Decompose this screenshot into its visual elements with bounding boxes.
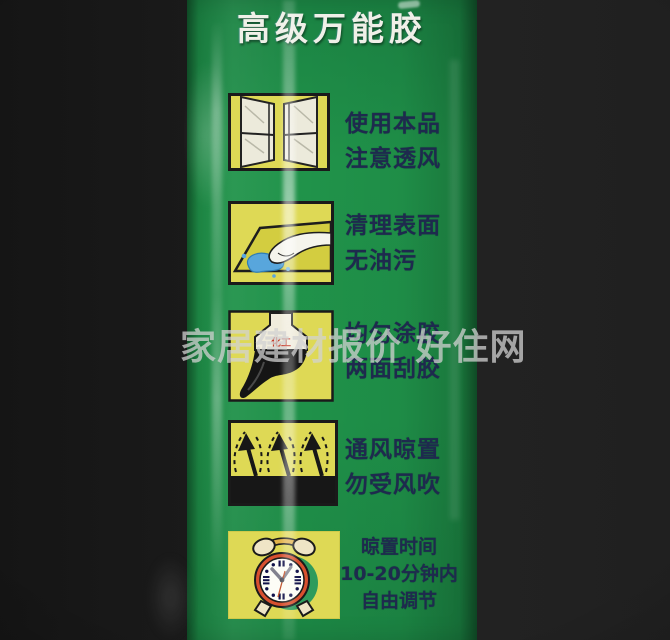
wipe-surface-icon xyxy=(228,201,334,285)
step-line: 使用本品 xyxy=(345,107,441,142)
step-text: 使用本品 注意透风 xyxy=(345,107,441,177)
step-text: 晾置时间 10-20分钟内 自由调节 xyxy=(339,534,459,615)
product-photo: 高级万能胶 使用本品 注意透风 xyxy=(0,0,670,640)
step-line: 10-20分钟内 xyxy=(339,561,459,588)
ventilation-arrows-icon xyxy=(228,420,338,506)
step-line: 晾置时间 xyxy=(339,534,459,561)
step-line: 勿受风吹 xyxy=(345,468,441,503)
step-text: 清理表面 无油污 xyxy=(345,209,441,279)
step-line: 无油污 xyxy=(345,244,441,279)
step-line: 清理表面 xyxy=(345,209,441,244)
open-window-icon xyxy=(228,93,330,171)
site-watermark: 家居建材报价 好住网 xyxy=(180,318,527,370)
alarm-clock-icon xyxy=(228,531,340,619)
step-line: 注意透风 xyxy=(345,142,441,177)
step-line: 通风晾置 xyxy=(345,433,441,468)
step-line: 自由调节 xyxy=(339,588,459,615)
step-text: 通风晾置 勿受风吹 xyxy=(345,433,441,503)
product-title: 高级万能胶 xyxy=(187,2,477,50)
